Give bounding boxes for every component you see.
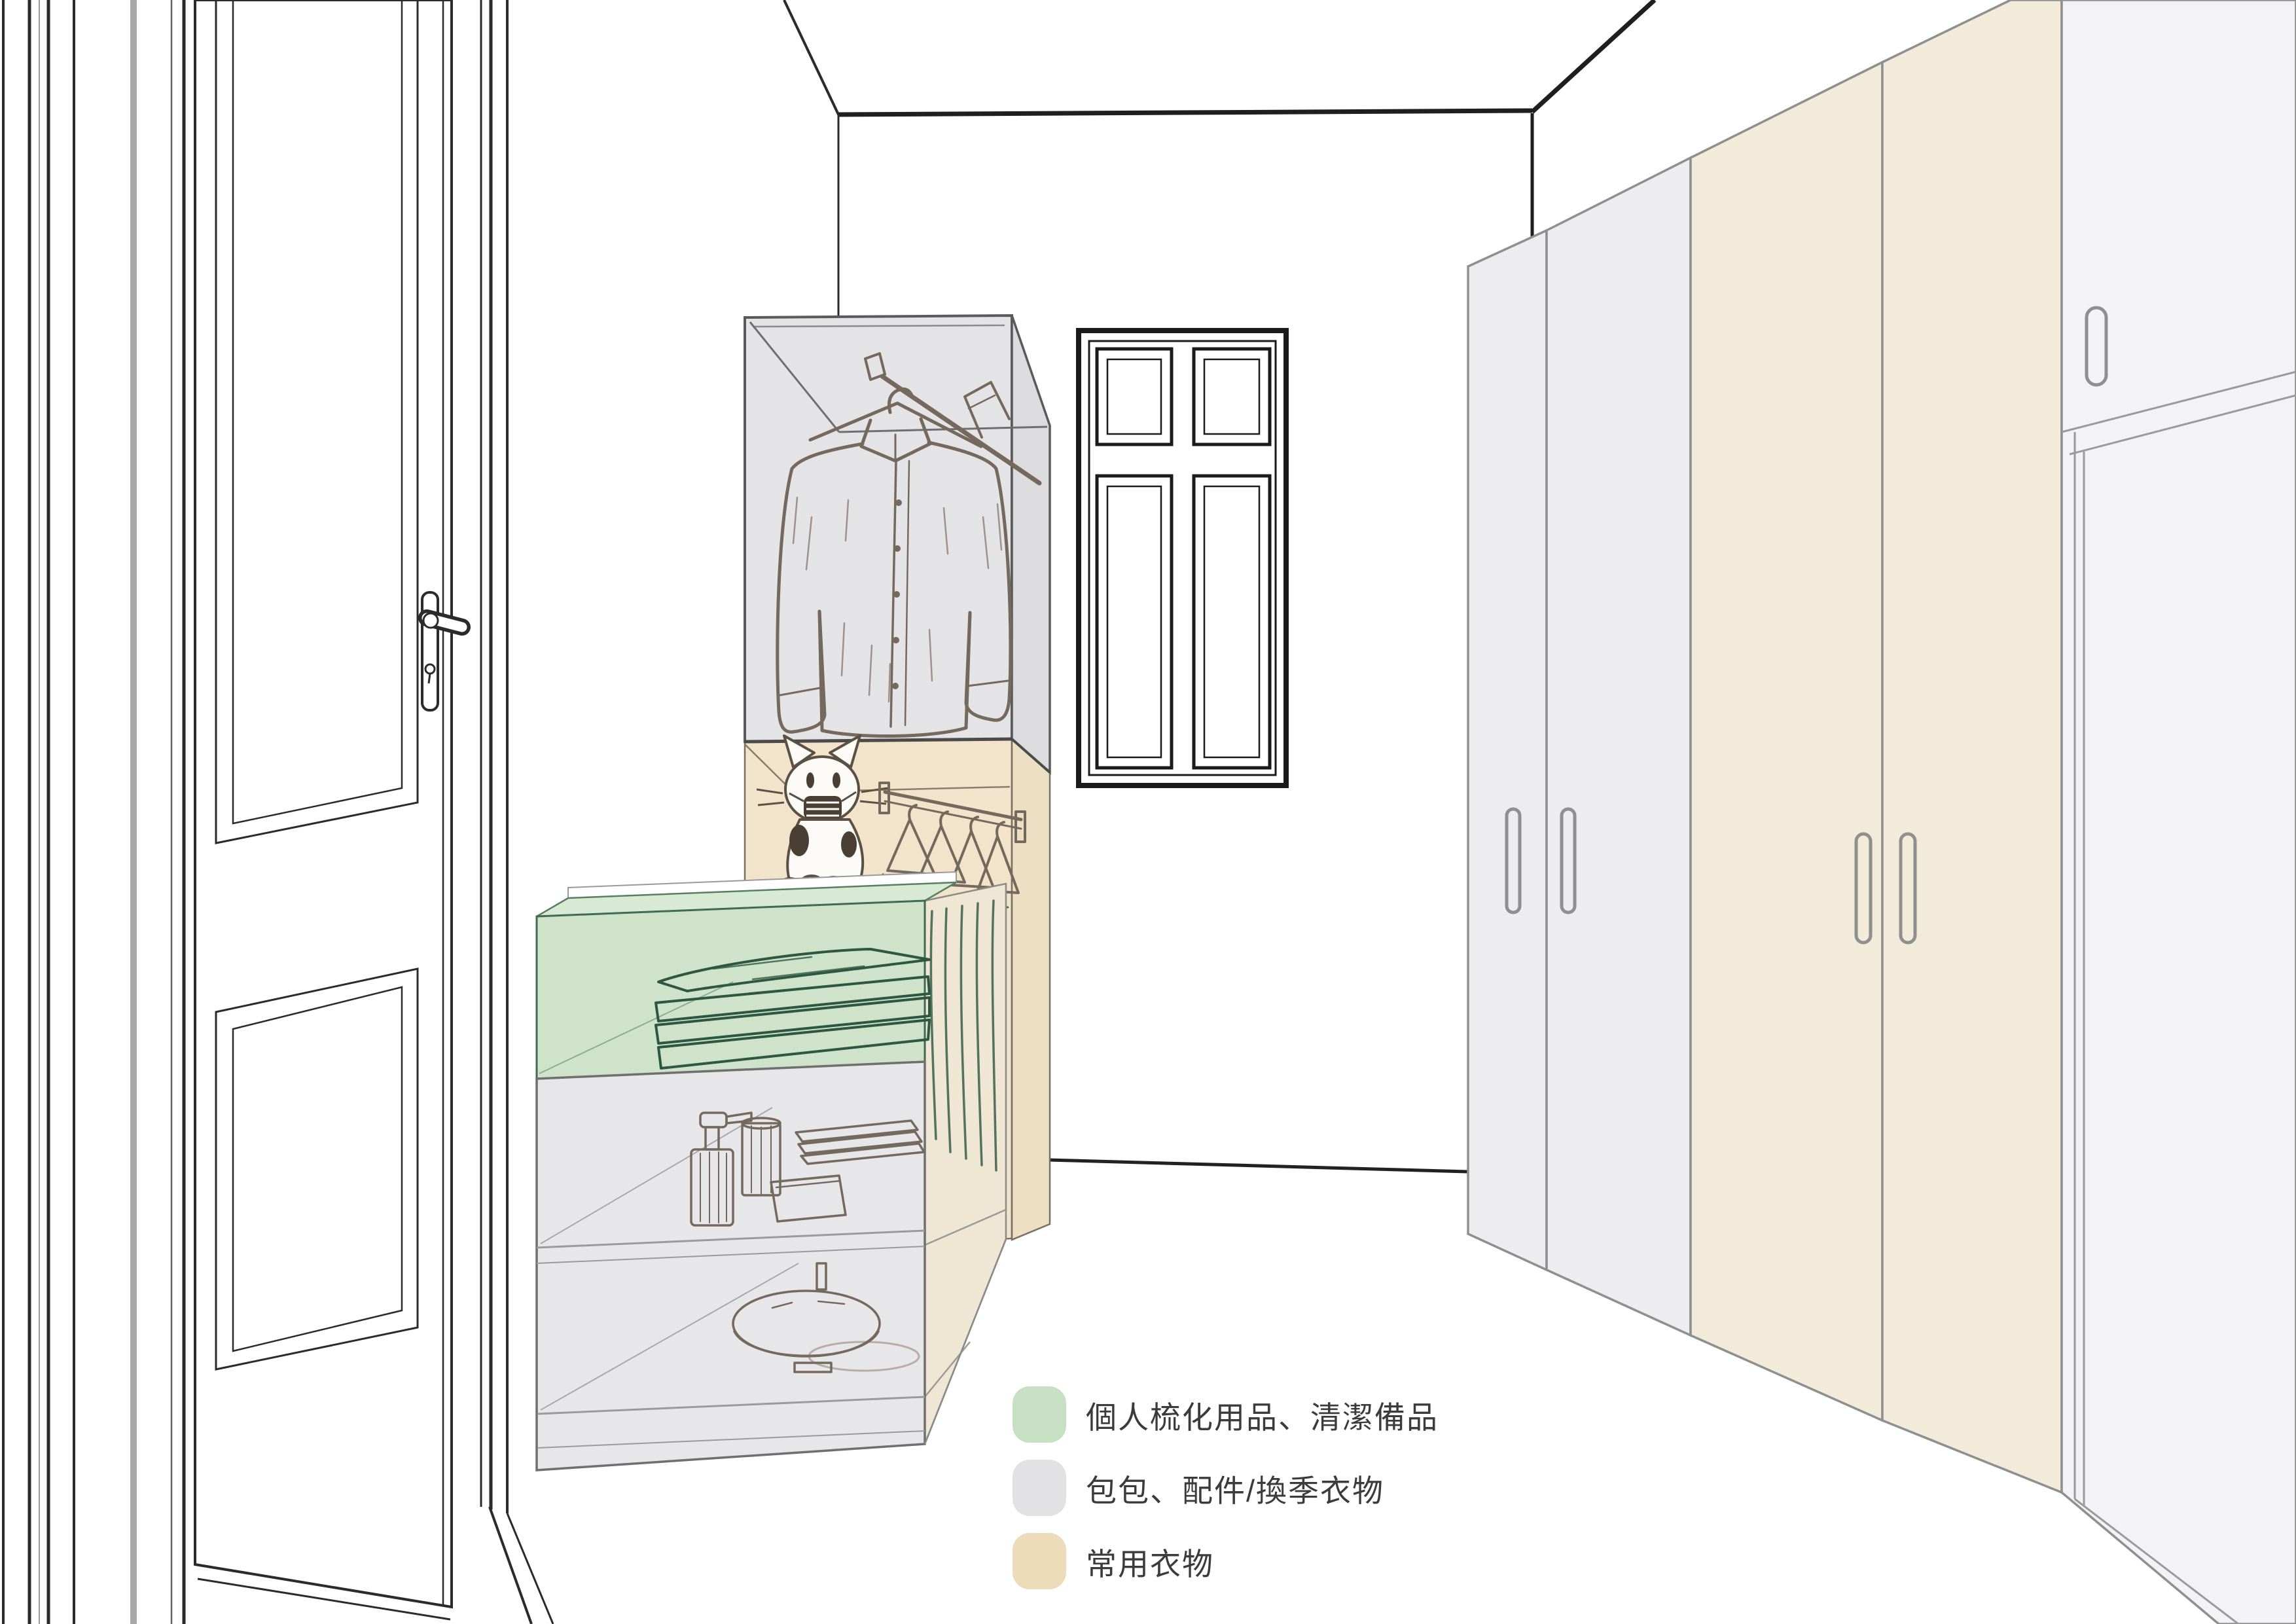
window-pane-bottom-right-inner — [1204, 486, 1259, 757]
island-green-display-front — [537, 901, 925, 1079]
cat-eye — [833, 772, 840, 788]
legend-item-beige: 常用衣物 — [1013, 1533, 1439, 1589]
window-pane-top-right-inner — [1204, 359, 1259, 434]
legend-label: 個人梳化用品、清潔備品 — [1086, 1392, 1439, 1437]
door-handle-hub — [423, 613, 438, 628]
wardrobe-door-beige-2 — [1882, 0, 2062, 1492]
door-frame-wall-lines — [3, 0, 184, 1624]
wardrobe-door-gray-1 — [1468, 230, 1547, 1270]
window-pane-bottom-left-inner — [1107, 486, 1161, 757]
zone-beige-side — [1012, 739, 1050, 1240]
wardrobe-door-gray-2 — [1547, 158, 1691, 1335]
cat-patch — [841, 831, 857, 857]
ceiling-edge-right — [1532, 0, 1655, 112]
legend: 個人梳化用品、清潔備品 包包、配件/換季衣物 常用衣物 — [1013, 1386, 1439, 1606]
legend-label: 常用衣物 — [1086, 1539, 1214, 1584]
island-side-face — [925, 884, 1006, 1444]
legend-label: 包包、配件/換季衣物 — [1086, 1466, 1384, 1511]
back-wall-top-edge — [838, 111, 1532, 115]
legend-item-gray: 包包、配件/換季衣物 — [1013, 1460, 1439, 1516]
legend-swatch-beige — [1013, 1533, 1066, 1589]
legend-swatch-gray — [1013, 1460, 1066, 1516]
wardrobe-door-beige-1 — [1691, 62, 1882, 1420]
zone-gray-front — [745, 316, 1012, 742]
window-pane-top-left-inner — [1107, 359, 1161, 434]
legend-item-green: 個人梳化用品、清潔備品 — [1013, 1386, 1439, 1443]
legend-swatch-green — [1013, 1386, 1066, 1443]
window — [1079, 331, 1286, 785]
wardrobe-tall-unit — [2062, 0, 2296, 1624]
island-dresser — [537, 872, 1006, 1470]
cat-patch — [789, 825, 809, 856]
entry-door — [3, 0, 553, 1624]
door-keyhole-tail — [429, 674, 430, 683]
ceiling-edge-left — [784, 0, 838, 115]
wardrobe-right — [1468, 0, 2296, 1624]
cat-eye — [806, 772, 814, 788]
walk-in-closet-illustration — [0, 0, 2296, 1624]
floor-wall-junction — [1048, 1160, 1468, 1172]
zone-gray-side — [1012, 316, 1050, 772]
